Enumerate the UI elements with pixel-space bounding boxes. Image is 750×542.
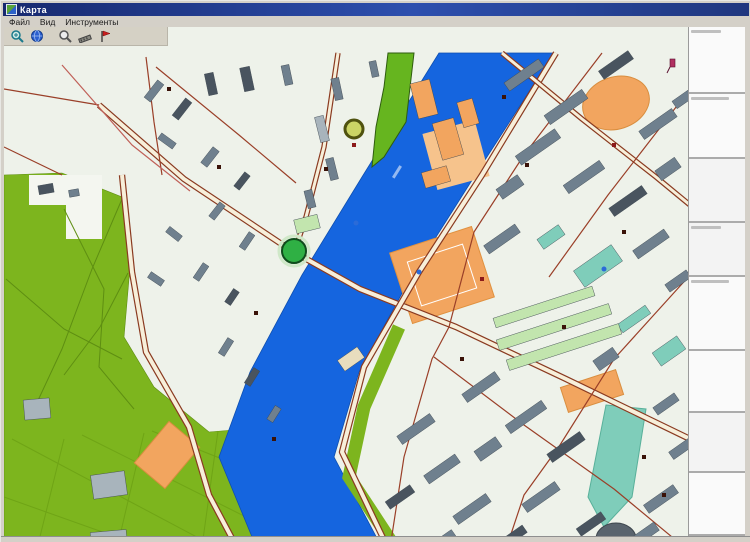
flag-icon[interactable] xyxy=(97,29,113,44)
poi-marker xyxy=(324,167,328,171)
poi-marker xyxy=(272,437,276,441)
window-title: Карта xyxy=(20,5,47,15)
panel-section-4 xyxy=(689,223,745,277)
poi-marker xyxy=(622,230,626,234)
poi-dot xyxy=(354,221,359,226)
panel-section-header xyxy=(691,226,721,229)
menu-item-file[interactable]: Файл xyxy=(9,17,30,27)
app-window: Карта ФайлВидИнструменты xyxy=(0,0,750,542)
building xyxy=(90,471,127,499)
window-frame-bottom xyxy=(1,536,750,542)
panel-section-7 xyxy=(689,413,745,473)
building xyxy=(68,189,79,198)
map-canvas[interactable] xyxy=(4,27,689,536)
poi-marker xyxy=(502,95,506,99)
roundabout-marker xyxy=(282,239,306,263)
poi-red xyxy=(352,143,356,147)
poi-marker xyxy=(167,87,171,91)
poi-marker xyxy=(662,493,666,497)
map-drawing xyxy=(4,27,688,536)
poi-red xyxy=(612,143,616,147)
panel-section-header xyxy=(691,280,729,283)
toolbar xyxy=(4,27,168,46)
flag-marker xyxy=(670,59,675,67)
panel-section-8 xyxy=(689,473,745,536)
panel-section-3 xyxy=(689,159,745,223)
zoom-in-icon[interactable] xyxy=(9,29,25,44)
building xyxy=(23,398,51,420)
poi-marker xyxy=(460,357,464,361)
poi-marker xyxy=(254,311,258,315)
menu-item-tools[interactable]: Инструменты xyxy=(65,17,118,27)
poi-marker xyxy=(642,455,646,459)
app-icon xyxy=(6,4,17,15)
side-panel xyxy=(688,27,745,536)
measure-icon[interactable] xyxy=(77,29,93,44)
panel-section-header xyxy=(691,97,729,100)
panel-section-2 xyxy=(689,94,745,159)
poi-dot xyxy=(602,267,607,272)
globe-icon[interactable] xyxy=(29,29,45,44)
panel-section-header xyxy=(691,30,721,33)
poi-dot xyxy=(417,270,422,275)
title-bar[interactable]: Карта xyxy=(3,3,749,16)
menu-item-view[interactable]: Вид xyxy=(40,17,55,27)
poi-red xyxy=(480,277,484,281)
search-icon[interactable] xyxy=(57,29,73,44)
panel-section-1 xyxy=(689,27,745,94)
poi-marker xyxy=(562,325,566,329)
poi-marker xyxy=(525,163,529,167)
ring-marker xyxy=(345,120,363,138)
menu-bar: ФайлВидИнструменты xyxy=(3,16,750,27)
panel-section-5 xyxy=(689,277,745,351)
panel-section-6 xyxy=(689,351,745,413)
poi-marker xyxy=(217,165,221,169)
window-frame-right xyxy=(745,16,750,542)
